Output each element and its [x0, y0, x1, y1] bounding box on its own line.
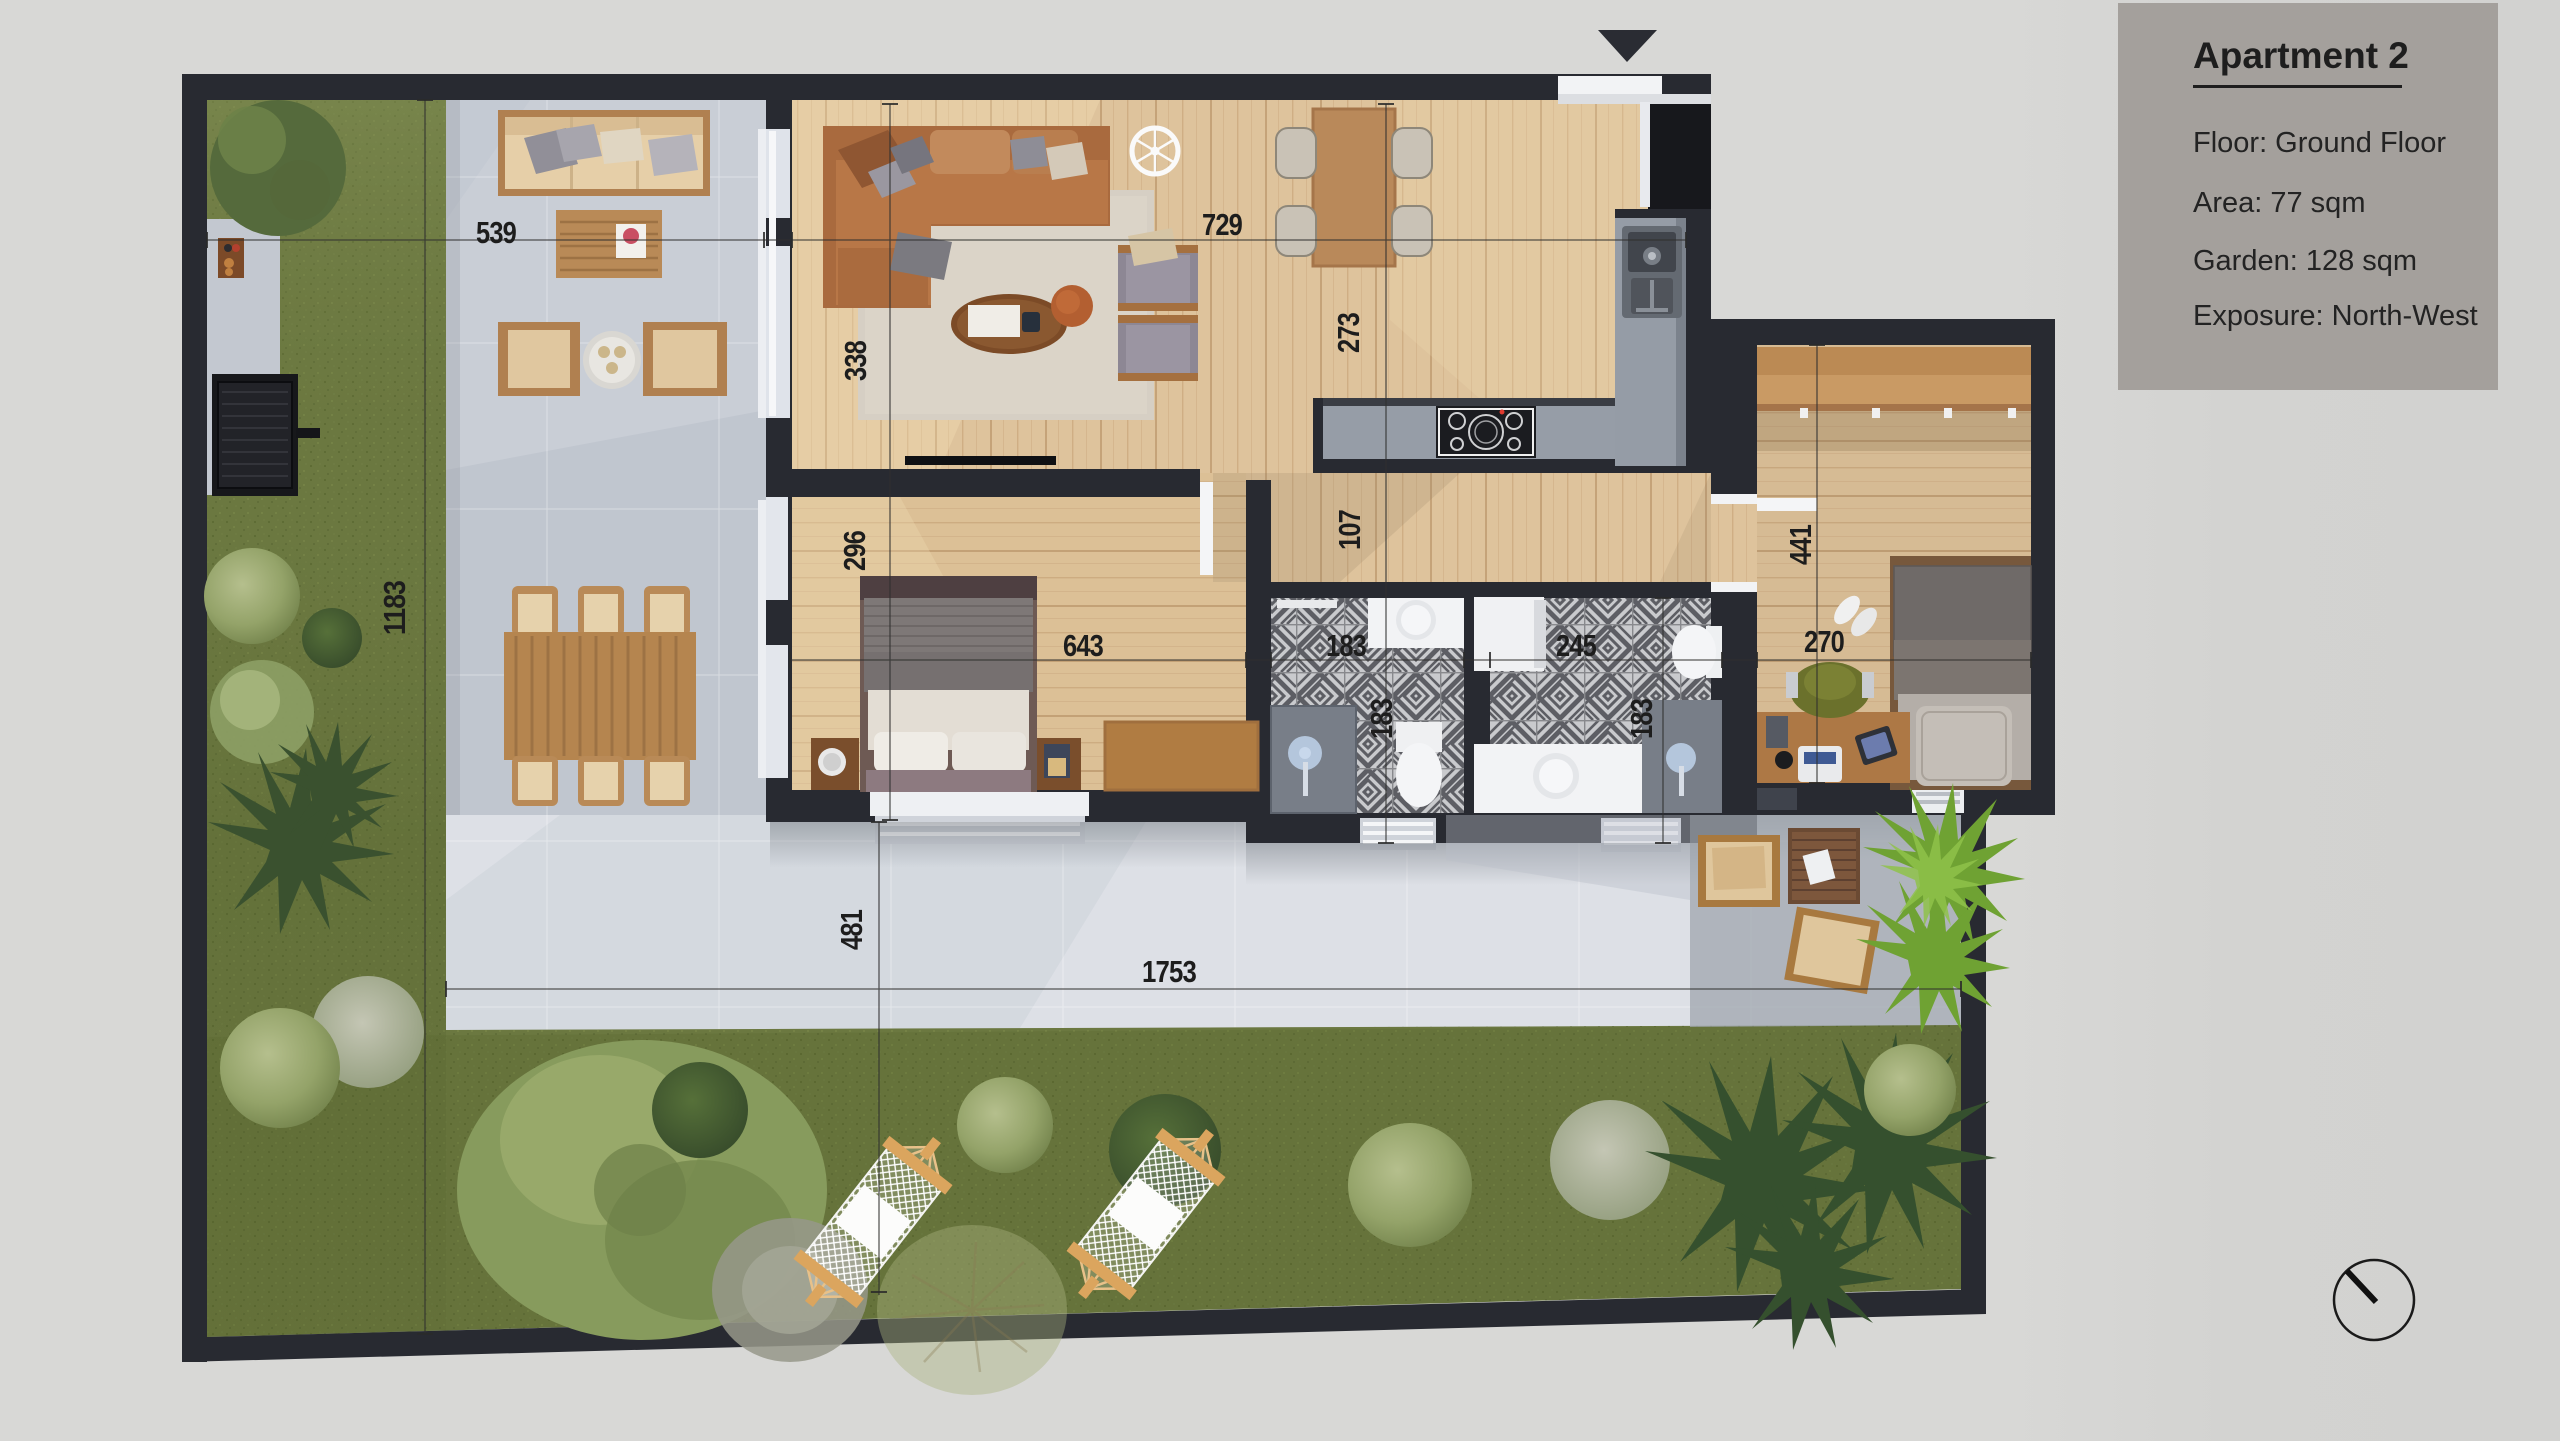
svg-text:296: 296: [837, 530, 872, 571]
svg-text:Area: 77 sqm: Area: 77 sqm: [2193, 187, 2365, 219]
svg-text:1183: 1183: [377, 580, 412, 635]
svg-text:270: 270: [1804, 624, 1844, 659]
svg-text:273: 273: [1331, 312, 1366, 353]
svg-text:107: 107: [1332, 510, 1367, 550]
svg-text:539: 539: [476, 215, 517, 250]
svg-text:Floor: Ground Floor: Floor: Ground Floor: [2193, 127, 2446, 159]
svg-text:183: 183: [1364, 698, 1399, 739]
svg-text:Exposure: North-West: Exposure: North-West: [2193, 300, 2478, 332]
svg-text:1753: 1753: [1142, 954, 1197, 989]
svg-text:245: 245: [1556, 628, 1597, 663]
svg-text:441: 441: [1783, 524, 1818, 565]
svg-text:183: 183: [1326, 628, 1367, 663]
svg-text:338: 338: [838, 340, 873, 381]
svg-text:729: 729: [1202, 207, 1243, 242]
svg-text:643: 643: [1063, 628, 1104, 663]
svg-text:481: 481: [834, 909, 869, 950]
svg-text:Apartment 2: Apartment 2: [2193, 35, 2409, 76]
svg-text:Garden: 128 sqm: Garden: 128 sqm: [2193, 245, 2417, 277]
svg-text:183: 183: [1624, 698, 1659, 739]
